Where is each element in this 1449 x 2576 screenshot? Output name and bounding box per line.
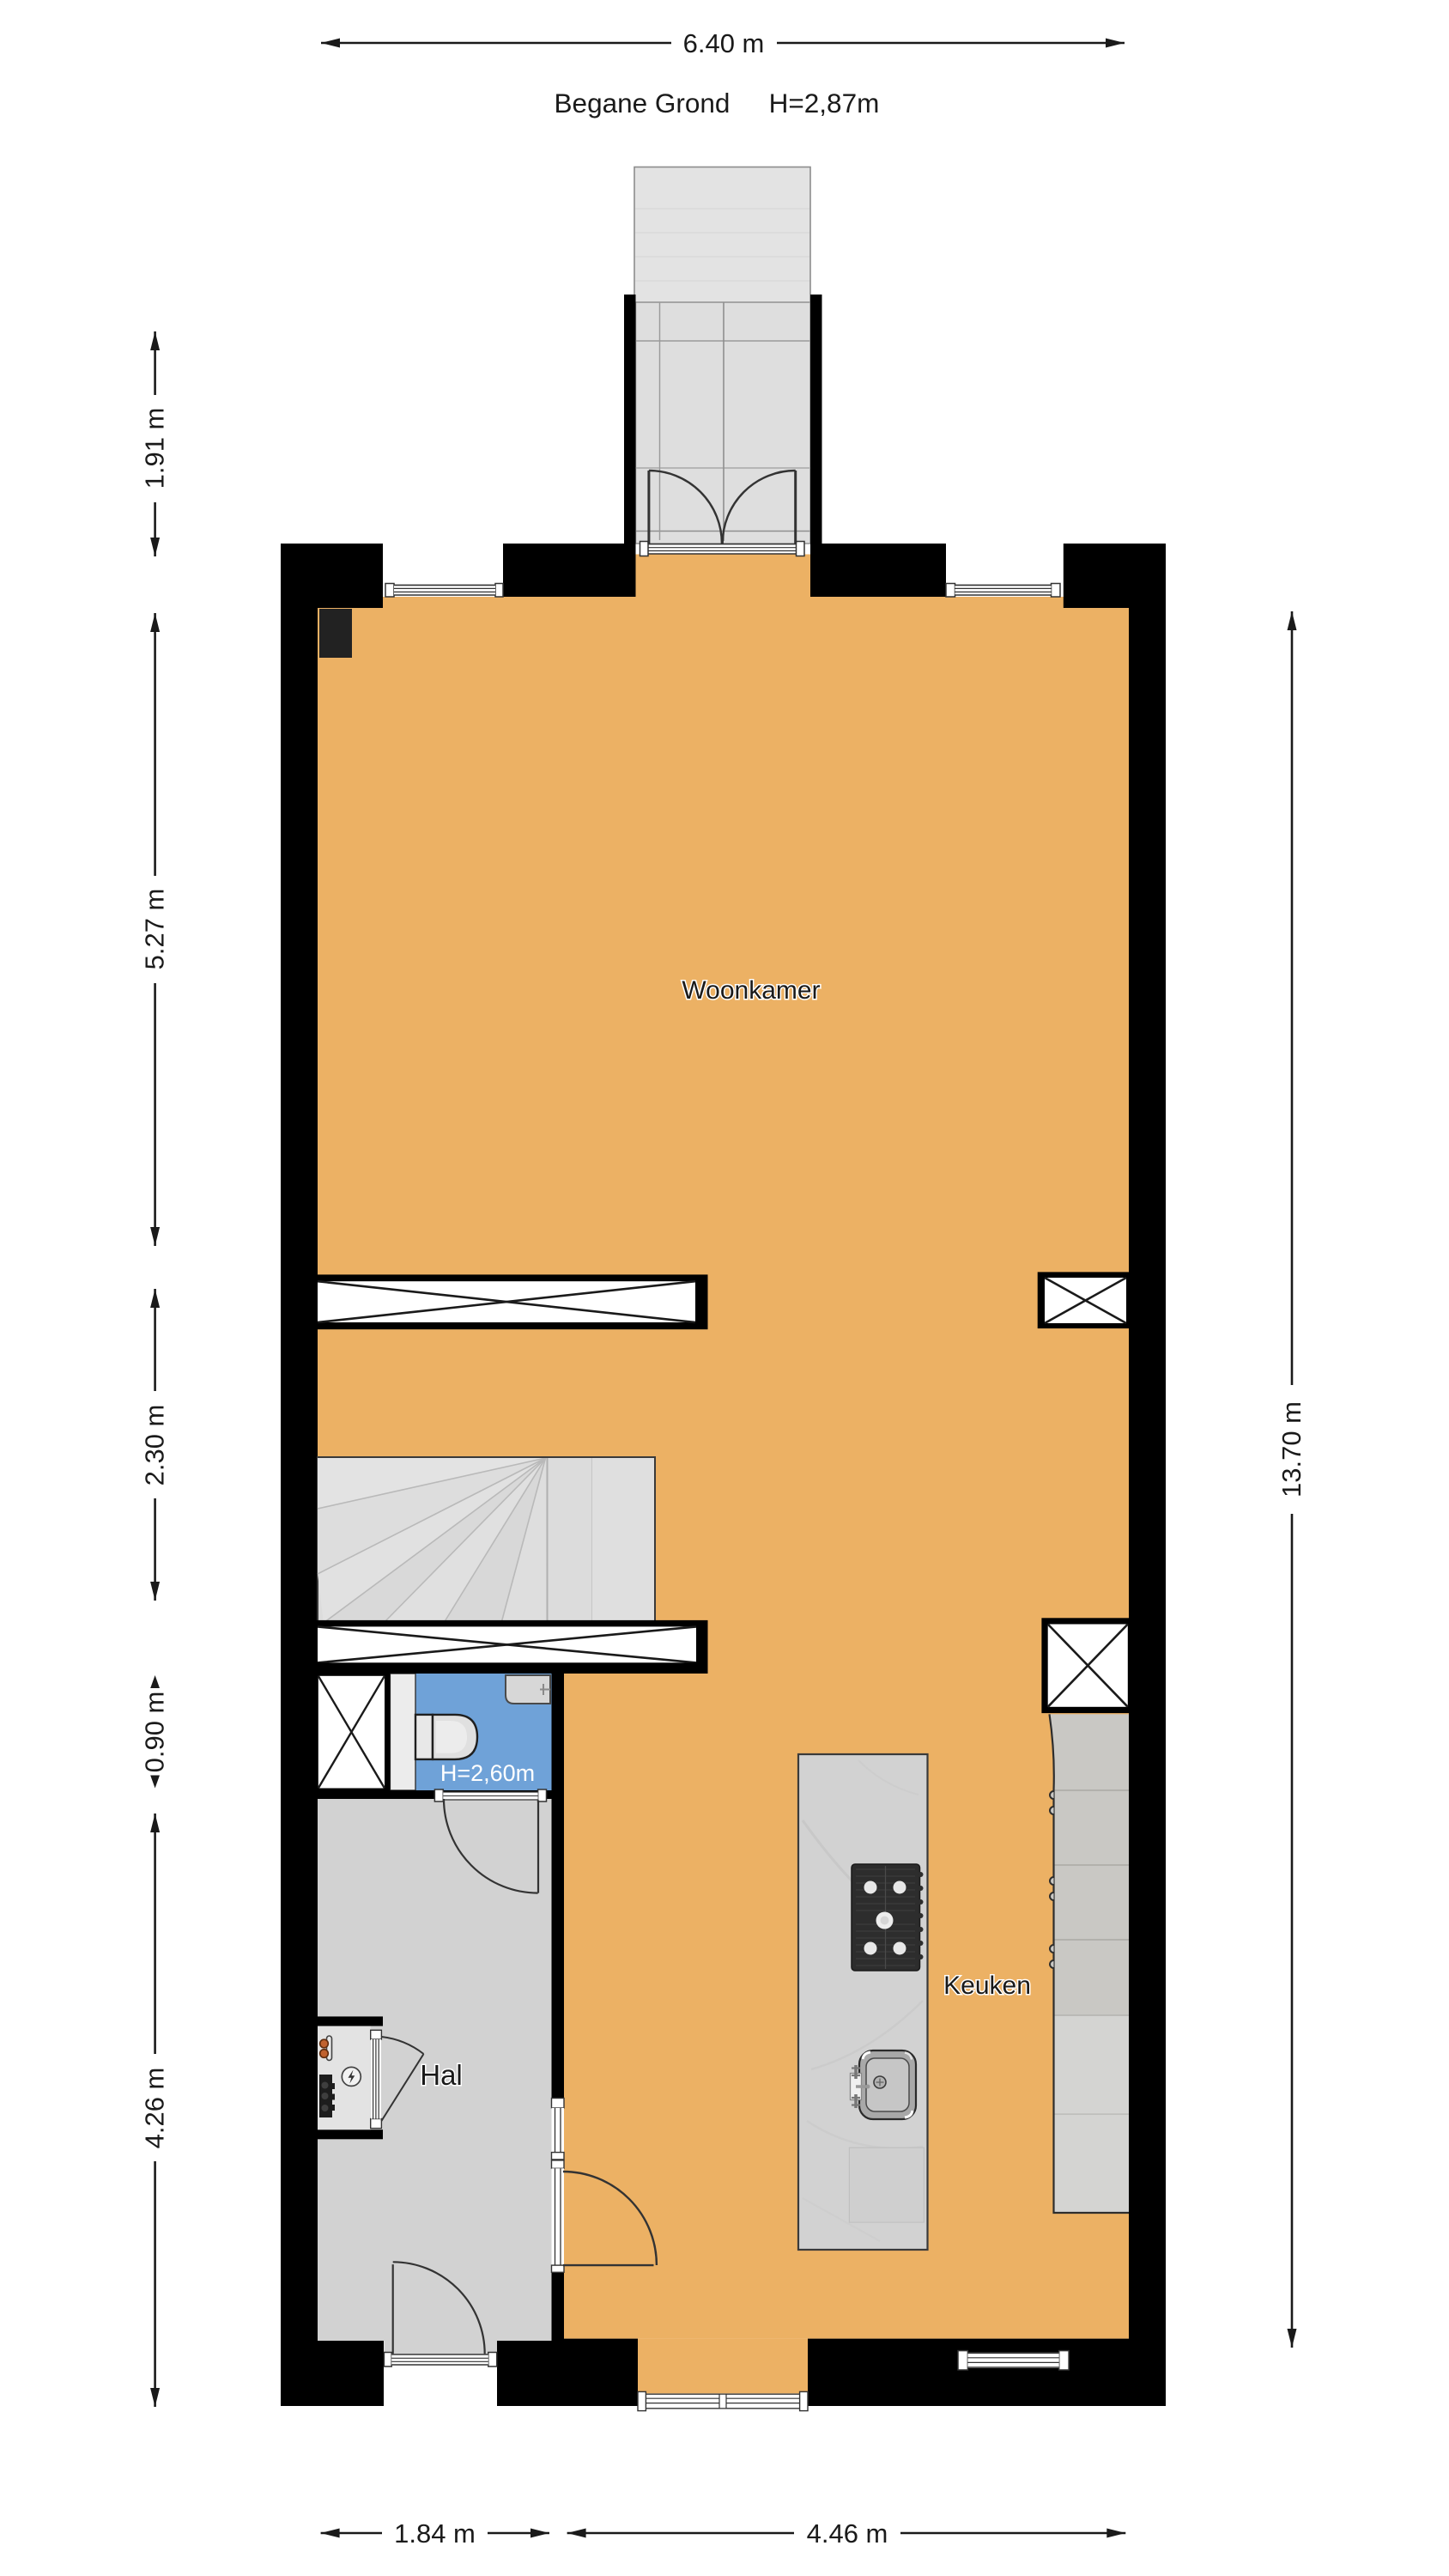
svg-text:H=2,87m: H=2,87m	[769, 88, 880, 118]
svg-text:4.26 m: 4.26 m	[140, 2068, 170, 2149]
svg-text:Keuken: Keuken	[943, 1971, 1031, 2000]
svg-text:1.91 m: 1.91 m	[140, 408, 170, 489]
svg-text:Hal: Hal	[420, 2059, 463, 2091]
svg-text:0.90 m: 0.90 m	[140, 1692, 170, 1773]
svg-text:2.30 m: 2.30 m	[140, 1405, 170, 1486]
svg-text:6.40 m: 6.40 m	[683, 28, 765, 58]
svg-text:13.70 m: 13.70 m	[1276, 1401, 1307, 1498]
svg-text:Begane Grond: Begane Grond	[555, 88, 731, 118]
svg-text:H=2,60m: H=2,60m	[440, 1760, 535, 1786]
svg-text:4.46 m: 4.46 m	[807, 2518, 888, 2549]
svg-text:Woonkamer: Woonkamer	[682, 976, 820, 1005]
svg-text:1.84 m: 1.84 m	[394, 2518, 476, 2549]
svg-text:5.27 m: 5.27 m	[140, 889, 170, 970]
